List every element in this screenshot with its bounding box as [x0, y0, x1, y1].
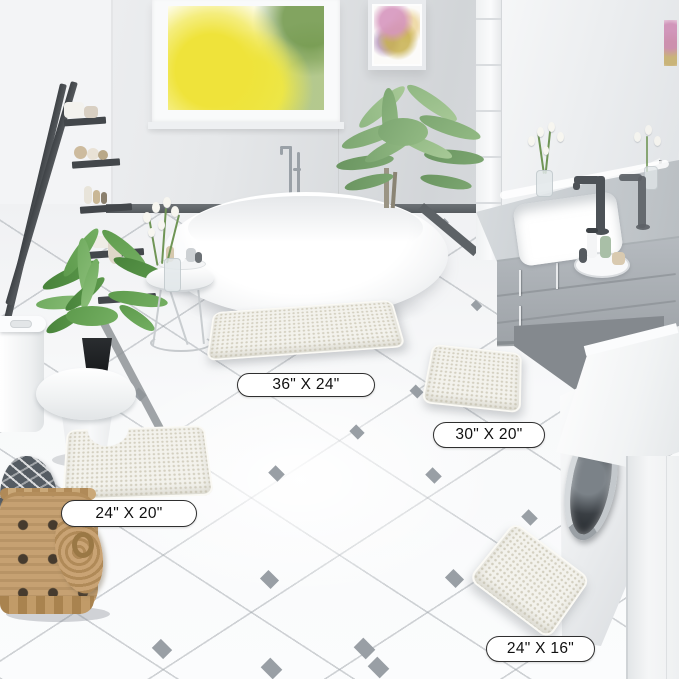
floor-tile-accent: [152, 639, 172, 659]
floor-tile-accent: [409, 384, 423, 398]
reflected-bloom: [634, 132, 641, 142]
sink-faucet-spout: [573, 182, 580, 190]
plant-leaf: [378, 118, 428, 146]
flower-bloom: [528, 136, 535, 146]
shelf-line: [476, 64, 501, 66]
shelf-bottle: [101, 192, 107, 204]
bath-mat-30x20: [421, 344, 522, 413]
flower-bloom: [163, 197, 171, 208]
table-base-ring: [150, 334, 212, 352]
reflected-faucet-base: [636, 224, 650, 230]
flower-bloom: [171, 206, 179, 217]
flower-vase: [164, 258, 181, 292]
flower-bloom: [548, 122, 555, 132]
flower-bloom: [537, 127, 544, 137]
toiletry-bottle: [195, 252, 202, 263]
size-label-24x20: 24" X 20": [61, 500, 197, 527]
tub-faucet-pipe: [297, 152, 300, 196]
mirror-art-reflection: [664, 20, 677, 66]
floor-tile-accent: [425, 467, 442, 484]
basket-lid-handle: [72, 532, 94, 558]
plant-leaf: [66, 306, 118, 326]
reflected-faucet-spout: [619, 174, 642, 181]
drawer-handle: [519, 270, 521, 296]
flower-bloom: [557, 132, 564, 142]
rolled-towel: [98, 150, 108, 160]
tub-faucet-handle: [293, 168, 301, 171]
dark-bottle: [579, 248, 587, 263]
shelf-line: [476, 202, 501, 204]
flower-bloom: [543, 146, 549, 155]
rolled-towel: [84, 106, 98, 118]
tub-faucet-spout: [280, 148, 283, 155]
candle-jar: [612, 252, 625, 265]
toilet-seat: [36, 368, 136, 420]
wall-art-floral: [374, 6, 420, 64]
flower-bloom: [143, 212, 151, 223]
rolled-towel: [64, 102, 84, 118]
reflected-vase: [644, 166, 658, 190]
reflected-faucet: [638, 176, 646, 228]
wall-art-frame: [368, 0, 426, 70]
flower-bloom: [148, 228, 155, 237]
tub-faucet-pipe: [289, 146, 292, 196]
counter-vase: [536, 170, 553, 197]
green-bottle: [600, 236, 611, 258]
floor-tile-accent: [445, 569, 464, 588]
floor-tile-accent: [268, 465, 285, 482]
bathroom-scene: 36" X 24" 30" X 20" 24" X 20" 24" X 16": [0, 0, 679, 679]
drawer-handle: [556, 263, 558, 289]
reflected-bloom: [645, 125, 652, 135]
wall-corner-line: [111, 0, 113, 216]
window-sill: [148, 122, 344, 129]
reflected-bloom: [654, 136, 661, 146]
laundry-cabinet: [626, 456, 679, 679]
window: [152, 0, 340, 124]
shelf-line: [476, 110, 501, 112]
size-label-24x16: 24" X 16": [486, 636, 595, 662]
size-label-30x20: 30" X 20": [433, 422, 545, 448]
shelf-bottle: [93, 190, 100, 204]
shelf-line: [476, 18, 501, 20]
flower-bloom: [152, 202, 160, 213]
basket-braided-base: [0, 596, 94, 614]
rolled-towel: [74, 146, 87, 159]
soap-pump-bottle: [587, 232, 597, 258]
floor-tile-accent: [521, 509, 538, 526]
toilet-tank-lid: [0, 316, 46, 332]
pump-nozzle: [586, 228, 598, 233]
window-view-trees: [168, 6, 324, 110]
floor-tile-accent: [368, 657, 390, 679]
floor-tile-accent: [471, 300, 482, 311]
size-label-36x24: 36" X 24": [237, 373, 375, 397]
floor-tile-accent: [260, 570, 279, 589]
flower-bloom: [158, 220, 165, 230]
drawer-seam: [497, 273, 676, 297]
sink-faucet: [596, 176, 605, 232]
toilet-tank: [0, 316, 44, 432]
floor-tile-accent: [349, 424, 364, 439]
floor-tile-accent: [354, 638, 376, 660]
shelf-bottle: [84, 186, 92, 204]
flush-button: [10, 320, 32, 328]
floor-tile-accent: [261, 658, 283, 679]
cabinet-seam: [666, 456, 667, 679]
